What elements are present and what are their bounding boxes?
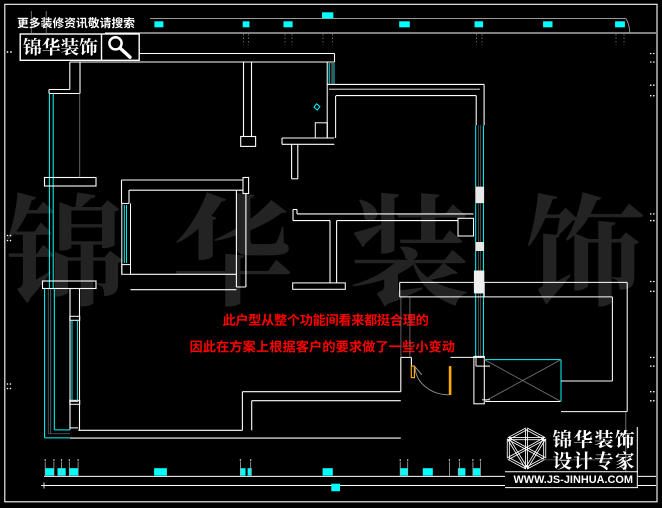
svg-text:WWW.JS-JINHUA.COM: WWW.JS-JINHUA.COM — [514, 474, 634, 486]
